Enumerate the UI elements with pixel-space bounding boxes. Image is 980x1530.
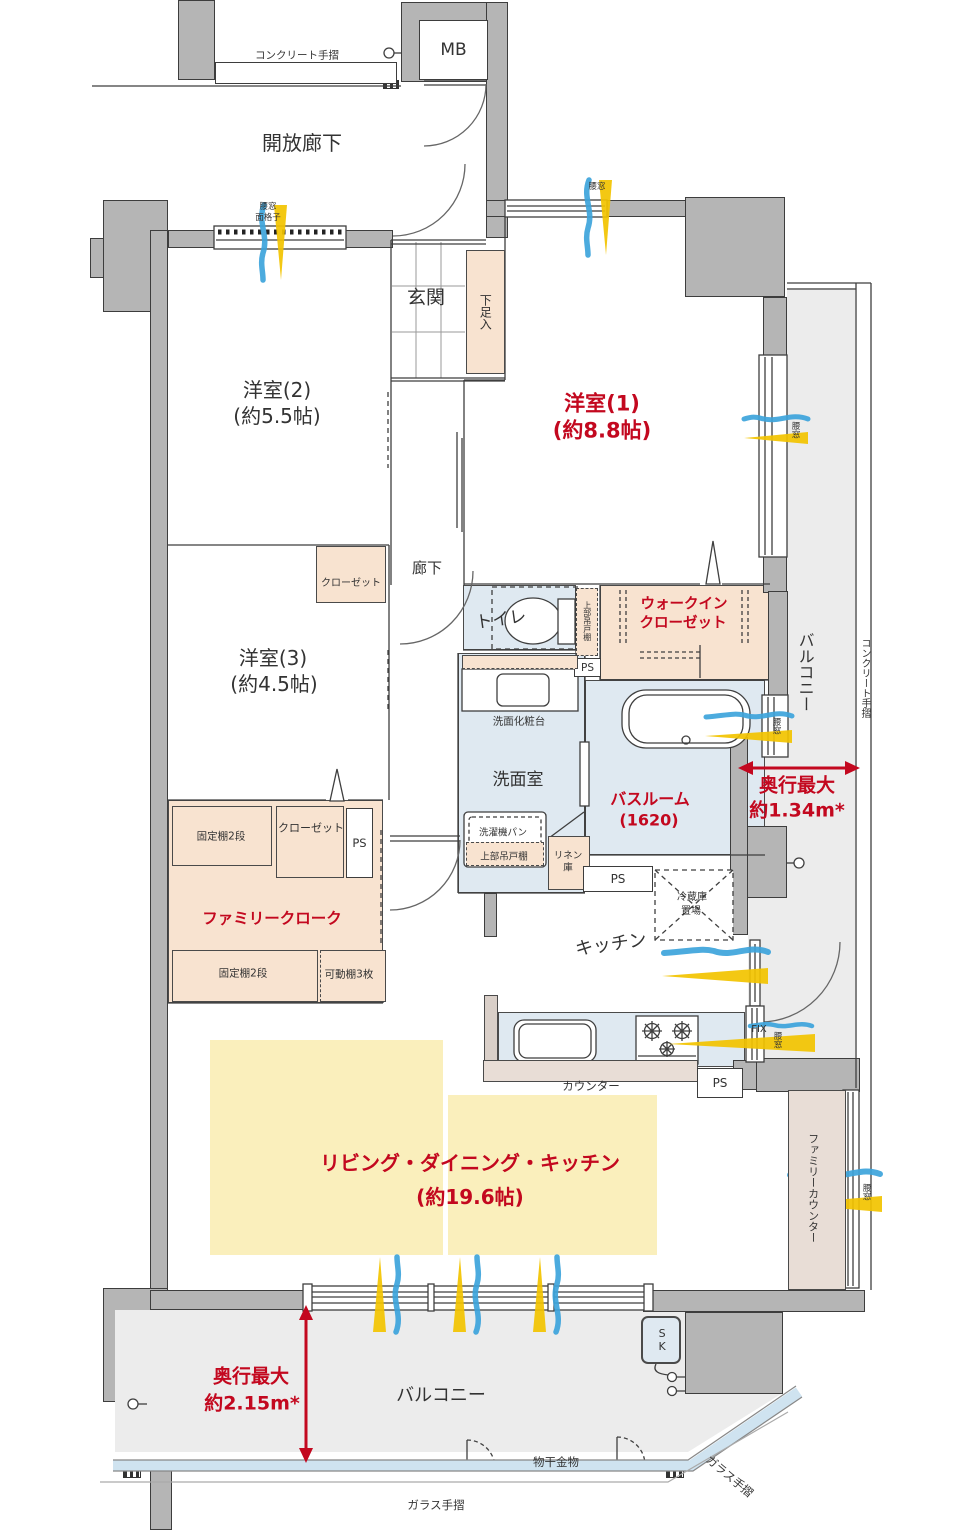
wall-east-b — [763, 555, 787, 593]
depth-right-label: 奥行最大 — [759, 775, 835, 798]
koshimado-fix: 腰窓 — [772, 1032, 782, 1049]
koshimado-family-counter: 腰窓 — [861, 1184, 871, 1201]
wall-y1-north-left — [486, 200, 507, 217]
wic-label-2: クローゼット — [640, 615, 727, 632]
fixed-shelf-bottom-label: 固定棚2段 — [219, 968, 268, 981]
linen-label-2: 庫 — [563, 862, 573, 873]
room1-name: 洋室(1) — [564, 391, 640, 416]
wall-west — [150, 230, 168, 1312]
fix-label: FIX — [751, 1024, 767, 1036]
linen-label-1: リネン — [554, 850, 583, 861]
glass-rail-diag-label: ガラス手摺 — [703, 1453, 756, 1500]
hatch-bottom-mid — [666, 1469, 684, 1478]
entrance-label: 玄関 — [407, 287, 445, 310]
counter-label: カウンター — [562, 1080, 620, 1094]
room2-size: (約5.5帖) — [233, 404, 320, 428]
laundry-fitting-label: 物干金物 — [533, 1456, 579, 1470]
corridor-label: 廊下 — [412, 559, 442, 577]
wall-y1-corner-block — [685, 197, 785, 297]
room3-name: 洋室(3) — [239, 646, 307, 670]
family-cloak-label: ファミリークローク — [202, 910, 342, 929]
counter-return-stub — [484, 995, 498, 1065]
koshimado-bath: 腰窓 — [771, 718, 781, 735]
bathroom-size: (1620) — [619, 810, 678, 829]
wall-y1-north-right — [605, 200, 687, 217]
ps-box-wic: PS — [574, 658, 601, 677]
bathroom-name: バスルーム — [610, 789, 690, 808]
ldk-size: (約19.6帖) — [416, 1185, 524, 1209]
ps-box-long: PS — [583, 866, 653, 892]
movable-shelf-label: 可動棚3枚 — [325, 969, 374, 982]
wall-sk-block — [685, 1312, 783, 1394]
floor-plan: MB PS PS PS PS コンクリート手摺 開放廊下 腰窓 面格子 腰窓 洋… — [0, 0, 980, 1530]
fixed-shelf-top-label: 固定棚2段 — [197, 831, 246, 844]
ps-box-fix: PS — [697, 1068, 743, 1098]
family-counter-label: ファミリーカウンター — [806, 1133, 819, 1243]
concrete-rail-right-label: コンクリート手摺 — [858, 638, 870, 718]
concrete-rail-top-label: コンクリート手摺 — [255, 50, 339, 63]
wall-wic-east — [768, 591, 788, 697]
mb-label: MB — [440, 40, 466, 60]
ps-label: PS — [611, 872, 626, 886]
vanity-label: 洗面化粧台 — [493, 716, 546, 729]
ps-box-fc: PS — [346, 808, 373, 878]
ldk-highlight-right — [448, 1095, 657, 1255]
wall-kitchen-east-2 — [747, 826, 787, 898]
wall-counter-step-b — [756, 1058, 860, 1092]
kitchen-label: キッチン — [574, 929, 648, 960]
kitchen-counter — [498, 1012, 745, 1067]
balcony-bottom-label: バルコニー — [396, 1385, 486, 1407]
depth-bottom-label: 奥行最大 — [213, 1366, 289, 1389]
wall-east-a — [763, 297, 787, 357]
koshimado-room1-top: 腰窓 — [588, 182, 605, 192]
washroom-label: 洗面室 — [493, 770, 544, 790]
closet-room3-box — [316, 546, 386, 603]
washer-upper-cabinet-label: 上部吊戸棚 — [480, 851, 528, 862]
open-corridor-label: 開放廊下 — [262, 131, 342, 155]
ldk-name: リビング・ダイニング・キッチン — [320, 1151, 620, 1175]
hatch-bottom-left — [123, 1469, 141, 1478]
wall-kitchen-east-1 — [730, 737, 748, 935]
room1-size: (約8.8帖) — [553, 418, 651, 443]
vanity-top-strip — [462, 655, 578, 669]
wall-left-pillar — [150, 1468, 172, 1530]
wall-left-column-notch — [90, 238, 104, 278]
fridge-label-2: 置場 — [681, 906, 701, 918]
grille-window-label-2: 面格子 — [255, 213, 281, 223]
wall-top-left-column — [178, 0, 215, 80]
closet-fc-label: クローゼット — [278, 821, 344, 834]
wall-south-left — [150, 1290, 312, 1310]
koshimado-room1-right: 腰窓 — [790, 422, 800, 439]
glass-rail-bottom-label: ガラス手摺 — [407, 1499, 464, 1513]
wall-left-stem — [147, 1400, 169, 1414]
wall-stub-kitchen — [484, 893, 497, 937]
grille-window-label-1: 腰窓 — [259, 202, 276, 212]
toilet-upper-cabinet-label: 上部吊戸棚 — [582, 601, 592, 641]
fridge-label-1: 冷蔵庫 — [677, 892, 707, 904]
room2-name: 洋室(2) — [243, 378, 311, 402]
ps-label: PS — [581, 662, 594, 674]
washer-pan-label: 洗濯機パン — [479, 827, 527, 838]
sk-label: SK — [655, 1327, 668, 1353]
mb-box: MB — [419, 20, 488, 80]
wall-north-seg2 — [345, 230, 393, 248]
wall-south-right-strip — [643, 1290, 865, 1312]
room3-size: (約4.5帖) — [230, 672, 317, 696]
ps-label: PS — [352, 836, 366, 850]
depth-right-value: 約1.34m* — [749, 800, 845, 823]
shoe-cabinet-label: 下足入 — [478, 294, 492, 330]
handrail-top — [215, 62, 397, 84]
depth-bottom-value: 約2.15m* — [204, 1393, 300, 1416]
ldk-highlight-left — [210, 1040, 443, 1255]
closet-room3-label: クローゼット — [321, 578, 381, 590]
wic-label-1: ウォークイン — [641, 596, 728, 613]
balcony-right-label: バルコニー — [795, 632, 814, 712]
ps-label: PS — [713, 1076, 728, 1090]
fc-closet-box — [276, 806, 344, 878]
wall-north-seg1 — [168, 230, 215, 248]
